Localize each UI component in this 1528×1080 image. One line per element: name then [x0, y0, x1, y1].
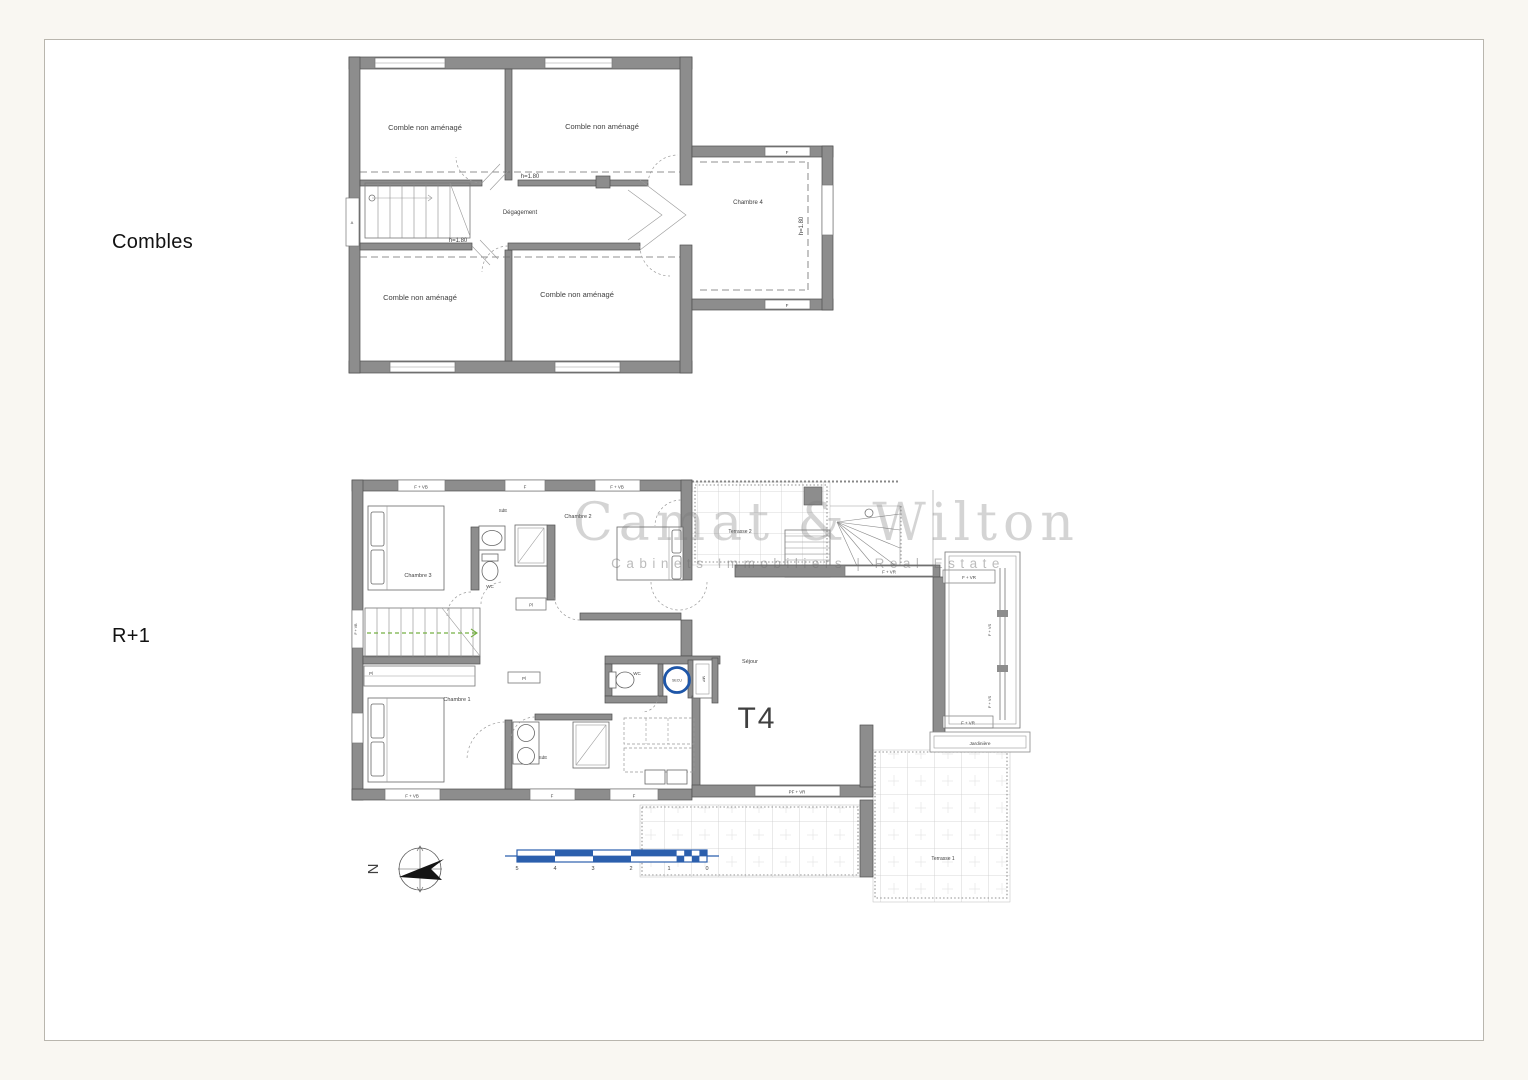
window-label-fvr-bay-top: F + VR [962, 575, 976, 580]
scale-tick-2: 2 [629, 866, 632, 872]
closet-label-pl-2: Pl [369, 671, 373, 676]
room-label-comble-tr: Comble non aménagé [565, 122, 639, 131]
height-annotation-right: h=1.80 [799, 216, 805, 235]
room-label-sde-bottom: SdE [539, 755, 548, 760]
kitchen-dashed-units [624, 718, 694, 784]
bed-chambre-2 [617, 527, 683, 580]
window-label-f-bottom-1: F [551, 794, 554, 799]
combles-windows [346, 58, 833, 372]
window-label-fvs-1: F + VS [987, 624, 992, 637]
height-annotation-top: h=1.80 [521, 174, 540, 180]
room-label-sde-top: SdE [499, 508, 508, 513]
room-label-wc-top: WC [486, 584, 494, 589]
window-label-fvs-2: F + VS [987, 696, 992, 709]
window-label-pfvr: PF + VR [789, 790, 806, 795]
combles-walls [349, 57, 833, 373]
room-label-degagement: Dégagement [503, 210, 538, 216]
window-label-fvb-left: F + VB [354, 623, 358, 635]
room-label-sejour: Séjour [742, 659, 758, 665]
window-label-f-bottom: F [786, 303, 789, 308]
scale-tick-5: 5 [515, 866, 518, 872]
scale-tick-3: 3 [591, 866, 594, 872]
scale-tick-0: 0 [705, 866, 708, 872]
height-annotation-bottom: h=1.80 [449, 238, 468, 244]
room-label-terrasse-1: Terrasse 1 [931, 856, 955, 862]
closet-label-pl-3: Pl [522, 676, 526, 681]
window-label-f-top-mid: F [524, 485, 527, 490]
window-label-fvb-top-right: F + VB [610, 485, 624, 490]
window-label-fvr-bay-bottom: F + VR [961, 721, 975, 726]
label-jardiniere: Jardinière [969, 741, 990, 747]
compass-arrow-icon [399, 859, 444, 880]
floor-label-r1: R+1 [112, 625, 150, 648]
scale-tick-1: 1 [667, 866, 670, 872]
scale-tick-4: 4 [553, 866, 556, 872]
room-label-chambre-1: Chambre 1 [443, 697, 470, 703]
room-label-chambre-3: Chambre 3 [404, 573, 431, 579]
terrace-2 [692, 482, 898, 566]
r1-floorplan: Chambre 3 SdE WC Chambre 2 Chambre 1 SdE… [340, 470, 1040, 915]
room-label-terrasse-2: Terrasse 2 [728, 529, 752, 535]
label-secu: SECU [672, 679, 682, 683]
north-compass: N [365, 846, 444, 892]
plan-sheet-page: Combles R+1 [0, 0, 1528, 1080]
interior-stairs [365, 608, 480, 657]
closet-label-mp: MP [702, 676, 707, 682]
closet-label-pl-1: Pl [529, 603, 533, 608]
window-label-fvb-top-left: F + VB [414, 485, 428, 490]
window-label-fvb-bottom: F + VB [405, 794, 419, 799]
apartment-type-label: T4 [737, 702, 776, 735]
room-label-chambre-4: Chambre 4 [733, 200, 763, 206]
window-label-f-top: F [786, 150, 789, 155]
room-label-wc-bottom: WC [633, 671, 641, 676]
room-label-comble-br: Comble non aménagé [540, 290, 614, 299]
window-label-a: A [351, 220, 354, 225]
combles-floorplan: Comble non aménagé Comble non aménagé Co… [340, 50, 840, 380]
room-label-comble-tl: Comble non aménagé [388, 123, 462, 132]
combles-door-arcs [456, 155, 678, 276]
bed-chambre-1 [368, 698, 444, 782]
combles-stairs [365, 183, 470, 238]
room-label-comble-bl: Comble non aménagé [383, 293, 457, 302]
window-label-f-bottom-2: F [633, 794, 636, 799]
floor-label-combles: Combles [112, 231, 193, 254]
room-label-chambre-2: Chambre 2 [564, 514, 591, 520]
window-label-fvr-wall: F + VR [882, 570, 896, 575]
compass-north-letter: N [365, 864, 382, 875]
